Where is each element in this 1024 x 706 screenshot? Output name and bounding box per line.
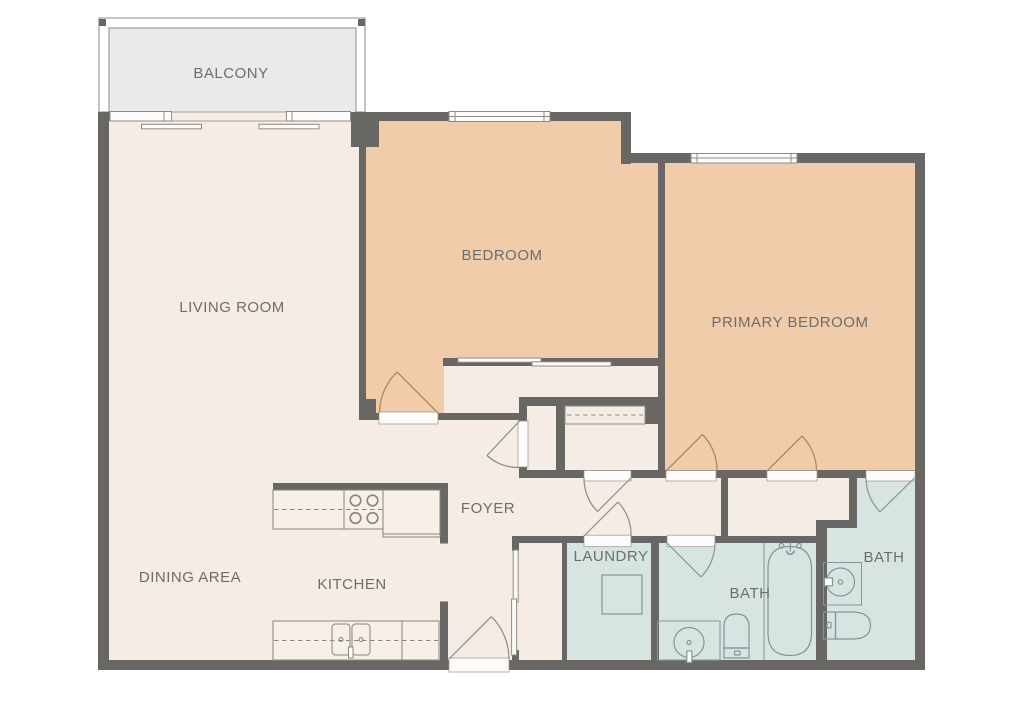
- svg-text:BEDROOM: BEDROOM: [461, 247, 542, 264]
- svg-text:BATH: BATH: [864, 549, 905, 566]
- svg-text:BATH: BATH: [730, 585, 771, 602]
- svg-text:LAUNDRY: LAUNDRY: [574, 548, 649, 565]
- svg-text:DINING AREA: DINING AREA: [139, 569, 241, 586]
- svg-text:BALCONY: BALCONY: [193, 65, 268, 82]
- svg-text:PRIMARY BEDROOM: PRIMARY BEDROOM: [712, 314, 869, 331]
- svg-text:FOYER: FOYER: [461, 500, 515, 517]
- svg-text:LIVING ROOM: LIVING ROOM: [179, 299, 285, 316]
- svg-text:KITCHEN: KITCHEN: [317, 576, 386, 593]
